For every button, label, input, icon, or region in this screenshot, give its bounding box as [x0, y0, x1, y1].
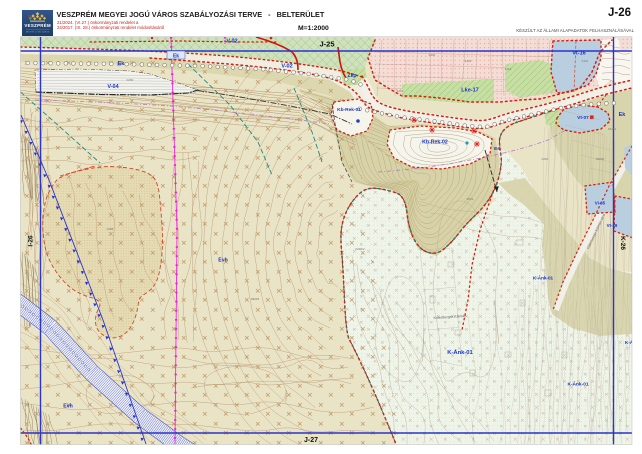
svg-text:6410: 6410 — [505, 67, 512, 71]
svg-text:I-26: I-26 — [28, 235, 35, 247]
svg-text:K-26: K-26 — [619, 236, 626, 250]
svg-text:0290/2: 0290/2 — [355, 247, 365, 251]
svg-text:Evh: Evh — [63, 404, 73, 410]
svg-text:K-Á: K-Á — [625, 339, 634, 345]
svg-text:V-04: V-04 — [107, 84, 119, 90]
svg-text:Vi-05: Vi-05 — [595, 201, 606, 206]
svg-text:6501: 6501 — [467, 197, 474, 201]
svg-text:6431: 6431 — [582, 59, 589, 63]
svg-text:Ek: Ek — [619, 112, 627, 118]
svg-text:09003: 09003 — [251, 297, 260, 301]
svg-text:Lke-17: Lke-17 — [461, 88, 478, 94]
svg-text:Ek: Ek — [173, 54, 179, 60]
svg-text:J-25: J-25 — [319, 40, 334, 49]
svg-text:V-02: V-02 — [281, 64, 292, 70]
svg-text:K-Ánk-01: K-Ánk-01 — [567, 381, 588, 388]
svg-text:K-Ánk-01: K-Ánk-01 — [447, 349, 473, 356]
svg-text:Vt-07: Vt-07 — [577, 115, 589, 121]
svg-text:09002: 09002 — [596, 157, 605, 161]
svg-text:0291: 0291 — [542, 157, 549, 161]
svg-text:6403: 6403 — [465, 59, 472, 63]
svg-text:0282: 0282 — [127, 78, 134, 82]
svg-text:Evh: Evh — [218, 258, 228, 264]
svg-text:Kb-Rek-02: Kb-Rek-02 — [422, 140, 448, 146]
svg-text:Kb-Rek-01: Kb-Rek-01 — [337, 107, 361, 113]
svg-text:Vt-29: Vt-29 — [607, 223, 618, 228]
svg-text:K-Ánk-01: K-Ánk-01 — [533, 275, 554, 281]
svg-text:Zkp: Zkp — [348, 73, 357, 79]
svg-text:0288: 0288 — [107, 227, 114, 231]
svg-text:6402: 6402 — [429, 53, 436, 57]
svg-text:Ek: Ek — [118, 61, 126, 67]
svg-text:6401: 6401 — [397, 89, 404, 93]
svg-text:Es: Es — [494, 146, 500, 152]
svg-text:04451: 04451 — [608, 127, 617, 131]
svg-text:V-02: V-02 — [226, 39, 237, 45]
svg-text:J-27: J-27 — [304, 437, 318, 444]
svg-text:Vt-16: Vt-16 — [572, 51, 585, 57]
